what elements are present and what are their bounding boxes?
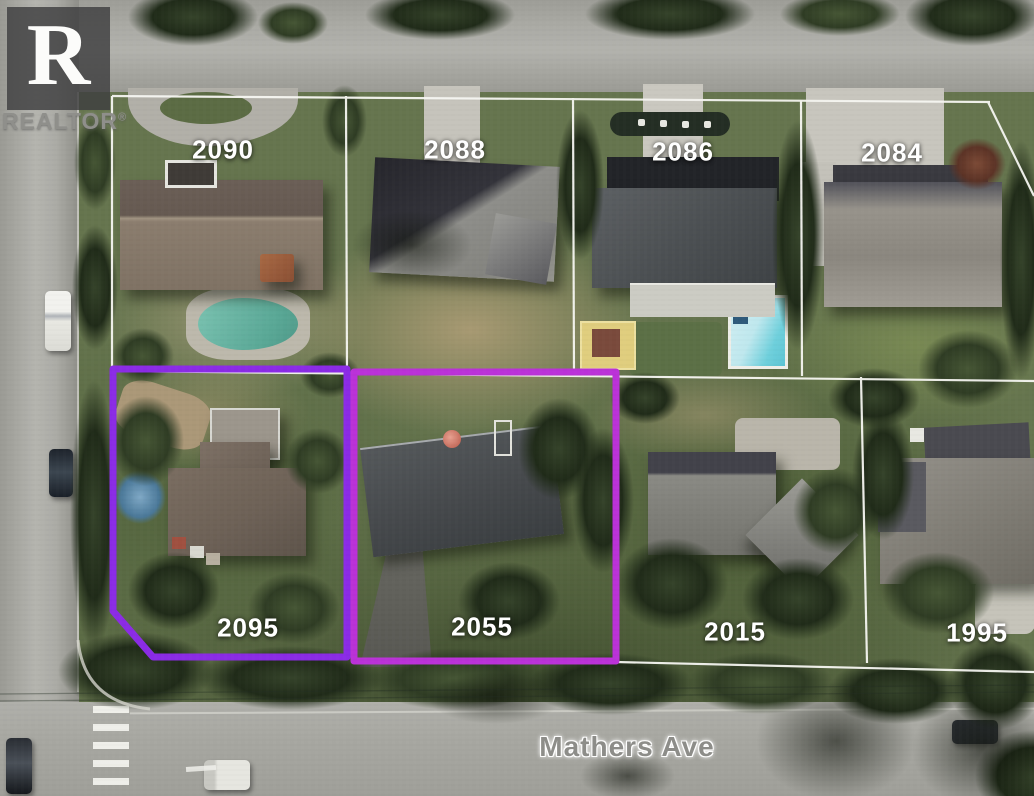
lot-label-2088: 2088 xyxy=(424,135,486,166)
aerial-parcel-map: 2090 2088 2086 2084 2095 2055 2015 1995 … xyxy=(0,0,1034,796)
parcel-boundary-lines xyxy=(112,96,1034,672)
lot-label-2090: 2090 xyxy=(192,135,254,166)
street-label: Mathers Ave xyxy=(539,731,714,763)
overlay-lines xyxy=(0,0,1034,796)
lot-label-2084: 2084 xyxy=(861,138,923,169)
lot-label-2095: 2095 xyxy=(217,613,279,644)
lot-label-2015: 2015 xyxy=(704,617,766,648)
power-lines xyxy=(0,685,1034,701)
realtor-r-icon: R xyxy=(27,12,91,100)
realtor-logo: R xyxy=(7,7,110,110)
curb-curve xyxy=(78,640,150,709)
realtor-wordmark: REALTOR® xyxy=(2,108,134,135)
lot-label-1995: 1995 xyxy=(946,618,1008,649)
realtor-wordmark-text: REALTOR xyxy=(2,108,118,134)
registered-mark: ® xyxy=(118,111,127,123)
lot-label-2055: 2055 xyxy=(451,612,513,643)
lot-label-2086: 2086 xyxy=(652,137,714,168)
